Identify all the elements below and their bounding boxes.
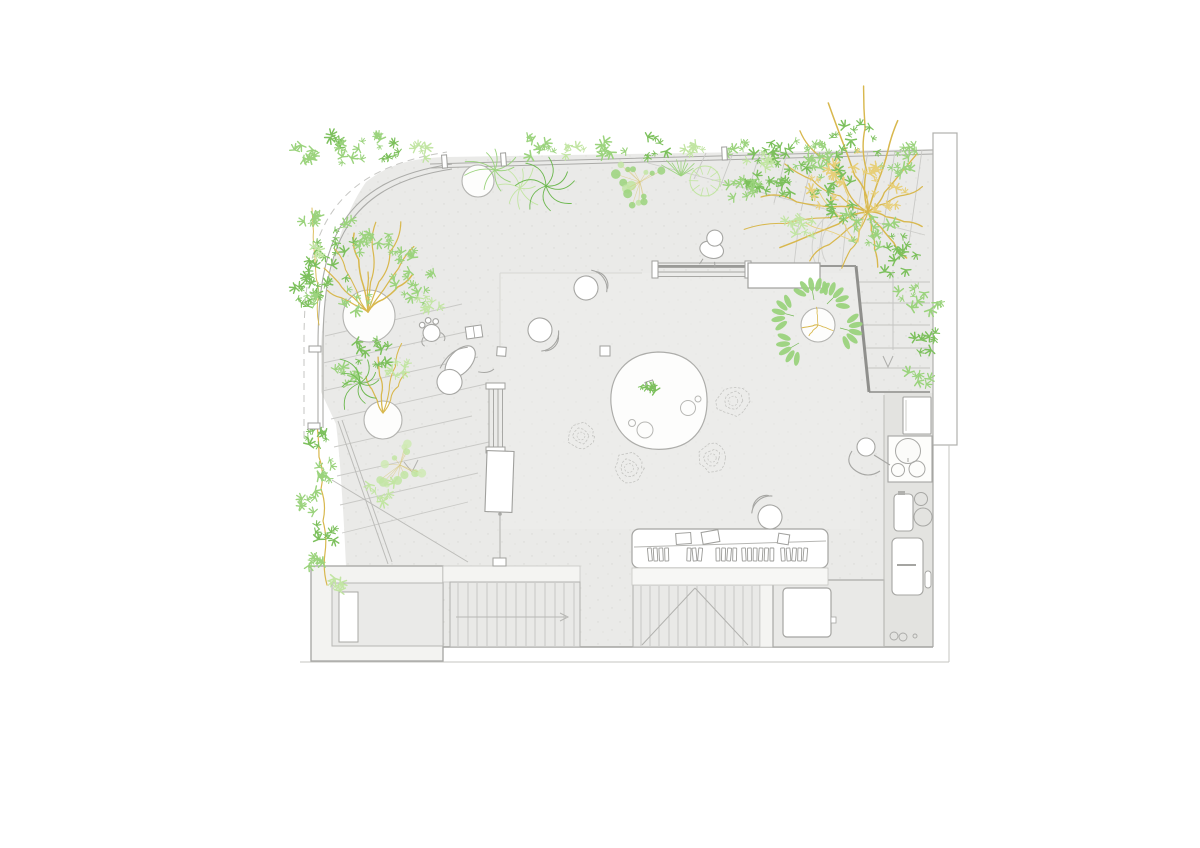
reading-room [773, 580, 884, 647]
pendant-node [498, 512, 502, 516]
shelf-book [659, 548, 663, 561]
shelf-book [753, 548, 757, 561]
plant-cluster [315, 457, 337, 484]
plant-cluster [297, 208, 324, 227]
shelf-book [716, 548, 720, 561]
stair-landing-band [443, 566, 580, 582]
shelf-tray [701, 530, 720, 545]
skylight-void [339, 592, 358, 642]
stair-side-band [760, 585, 773, 647]
fence-post [309, 346, 321, 352]
counter-plinth [632, 568, 828, 585]
shelf-book [665, 548, 669, 561]
sink-basin [894, 494, 913, 531]
stair-well [450, 582, 580, 647]
bench-end-cap [486, 383, 505, 389]
planter-circle [364, 401, 402, 439]
fence-post [722, 147, 728, 160]
sand-circle-outline [611, 352, 707, 449]
shelf-book [687, 548, 691, 561]
shelf-book [727, 548, 732, 561]
staircase-center [633, 585, 773, 647]
shelf-book [733, 548, 737, 561]
door-leaf [892, 538, 923, 595]
shelf-book [803, 548, 808, 561]
plant-cluster [290, 141, 322, 166]
small-table [485, 451, 514, 513]
table-latch [831, 617, 836, 623]
cooktop [888, 436, 932, 482]
shelf-book [692, 548, 697, 561]
shelf-book [792, 548, 797, 561]
fence-post [308, 423, 320, 429]
fence-post [501, 153, 507, 166]
door-jamb-pill [925, 571, 931, 588]
shelf-book [742, 548, 746, 561]
bench-end-cap [652, 261, 658, 278]
shelf-tray [676, 532, 692, 544]
shelf-book [770, 548, 774, 561]
shelf-book [781, 548, 786, 561]
shelf-book [786, 548, 791, 561]
plant-cluster [359, 129, 386, 151]
fridge [903, 397, 931, 434]
plant-cluster [379, 136, 402, 163]
fence-post [442, 155, 448, 168]
low-table-square [783, 588, 831, 637]
pendant-base [493, 558, 506, 566]
staircase-left [443, 566, 580, 647]
shelf-book [798, 548, 802, 561]
floor-plan-page [0, 0, 1200, 848]
shelf-book [758, 548, 763, 561]
neighbour-wall-strip [933, 133, 957, 445]
plant-cluster [294, 486, 323, 517]
floor-plan-canvas [0, 0, 1200, 848]
shelf-book [748, 548, 752, 561]
shelf-book [653, 548, 658, 561]
sink-tap [898, 491, 905, 495]
shelf-book [764, 548, 768, 561]
floor-cushion [600, 346, 610, 356]
floor-cushion [497, 347, 507, 357]
shelf-book [721, 548, 725, 561]
shelf-tray [777, 533, 789, 545]
sand-circle [611, 352, 707, 449]
shelf-book [647, 548, 652, 561]
shelf-book [698, 548, 703, 561]
